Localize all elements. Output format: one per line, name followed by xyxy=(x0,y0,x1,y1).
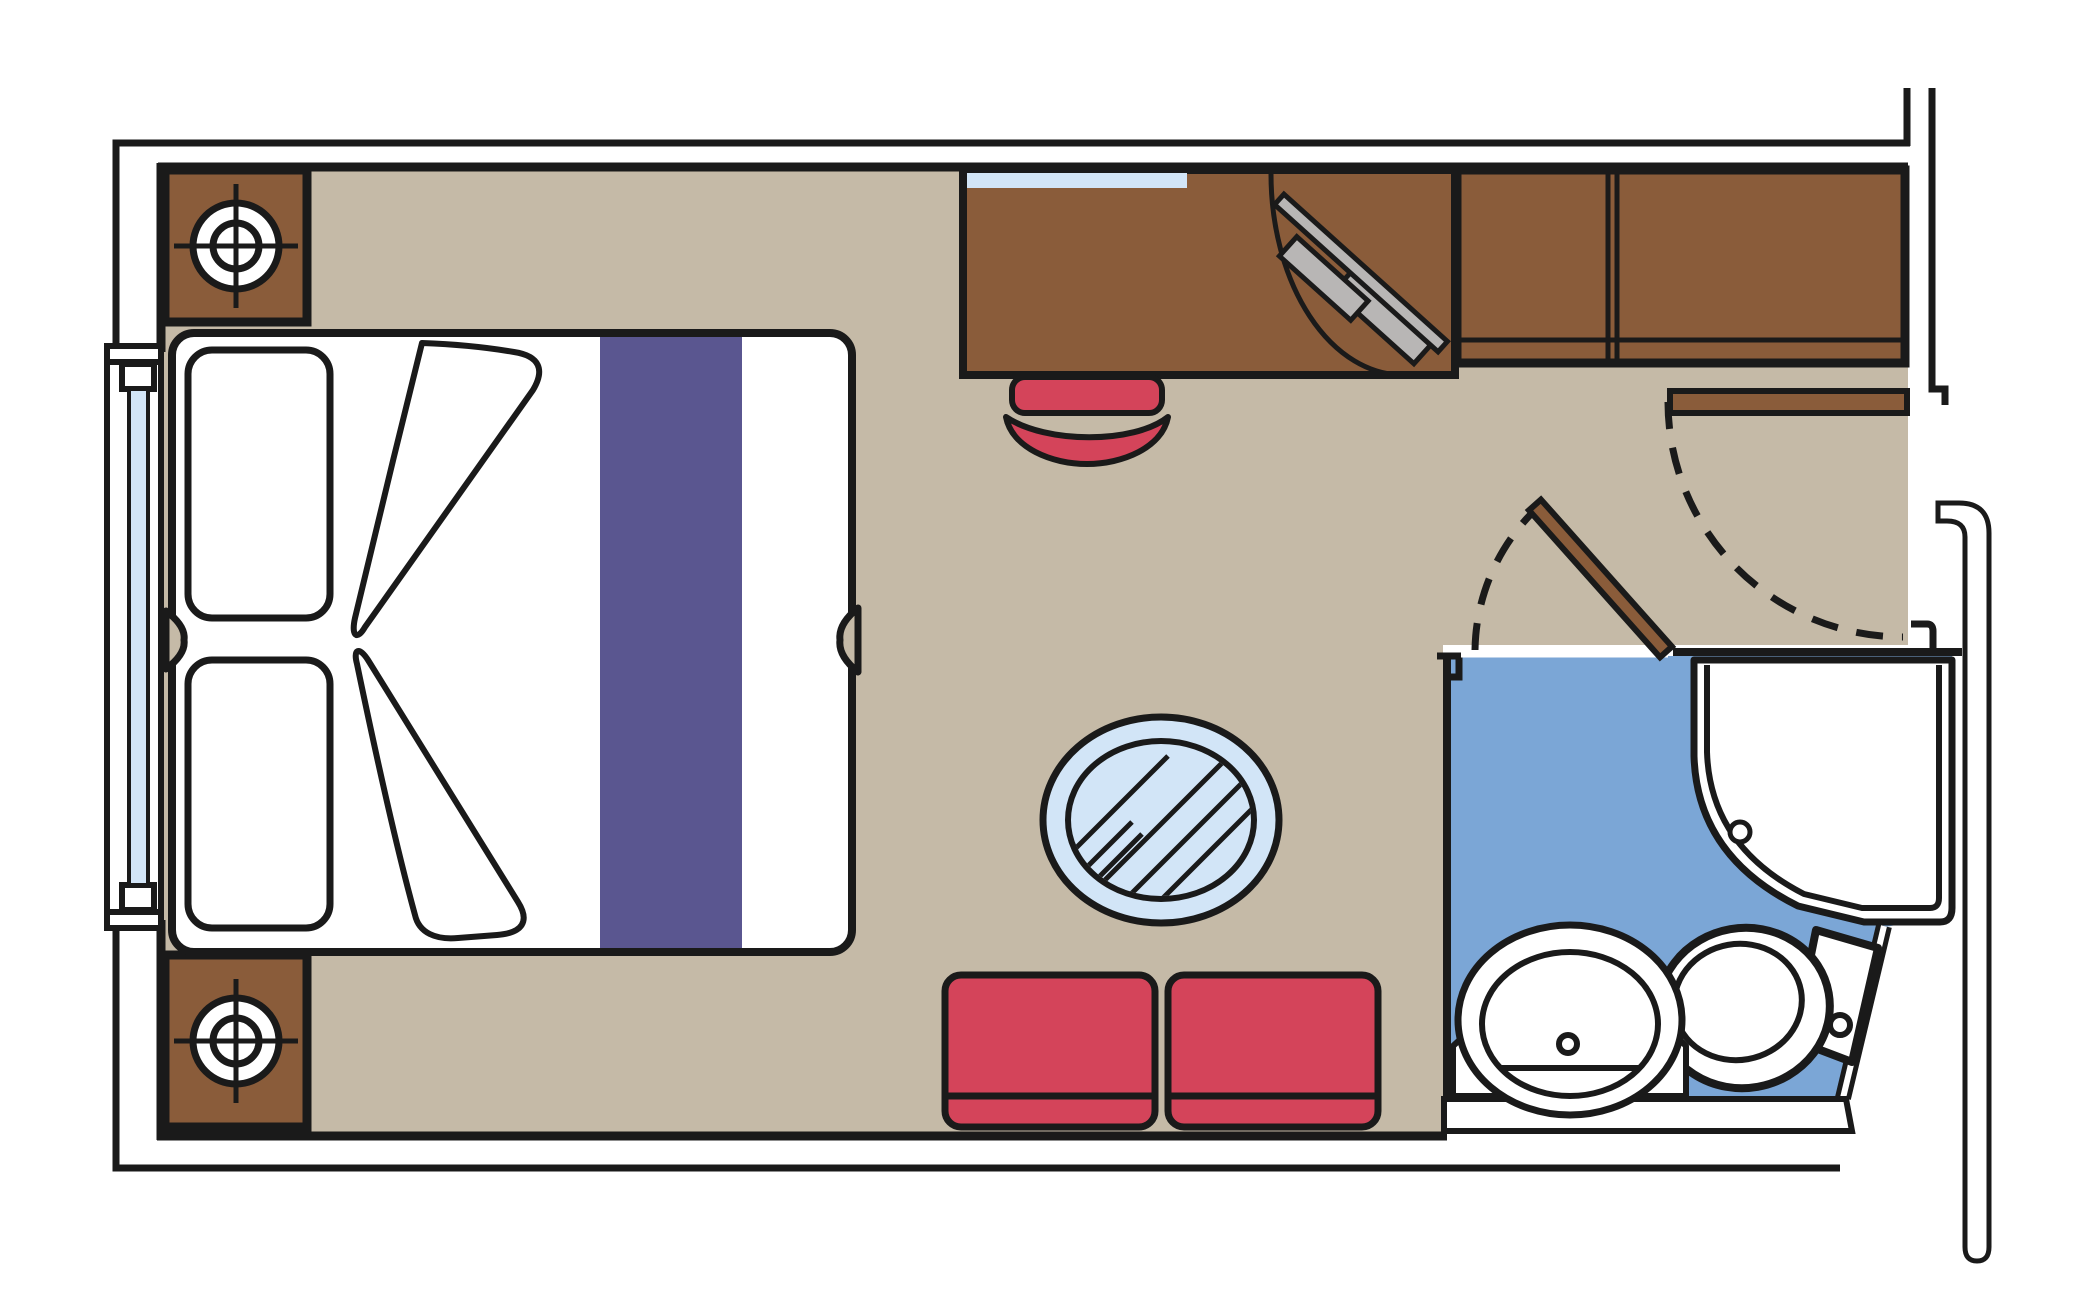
armchair xyxy=(1168,975,1378,1127)
washbasin xyxy=(1453,925,1686,1115)
armchair-right xyxy=(1168,975,1378,1127)
window xyxy=(107,346,161,928)
bathroom-bottom-wall xyxy=(1444,1099,1852,1131)
armchair xyxy=(945,975,1155,1127)
armchair-left xyxy=(945,975,1155,1127)
desk xyxy=(963,170,1455,375)
toilet-flush-button xyxy=(1830,1015,1850,1035)
entry-strike-plate xyxy=(1911,624,1933,651)
nightstand-bottom xyxy=(165,955,307,1127)
double-bed xyxy=(166,333,858,952)
entrance-door-leaf xyxy=(1670,391,1907,413)
desk-mirror xyxy=(967,173,1187,188)
pillow xyxy=(188,350,330,618)
wardrobe xyxy=(1457,170,1905,363)
pillow xyxy=(188,660,330,928)
glass-table xyxy=(1043,717,1279,923)
nightstand-top xyxy=(165,170,307,322)
wardrobe-body xyxy=(1457,170,1905,363)
floor-plan-drawing xyxy=(0,0,2100,1299)
window-glass xyxy=(129,389,148,885)
corridor-wall-upper xyxy=(1932,88,1945,405)
bed-runner xyxy=(600,337,742,948)
shower-drain-icon xyxy=(1730,822,1750,842)
faucet-dot-icon xyxy=(1559,1035,1577,1053)
cabin-floor-plan xyxy=(0,0,2100,1299)
stool-seat xyxy=(1012,377,1162,413)
